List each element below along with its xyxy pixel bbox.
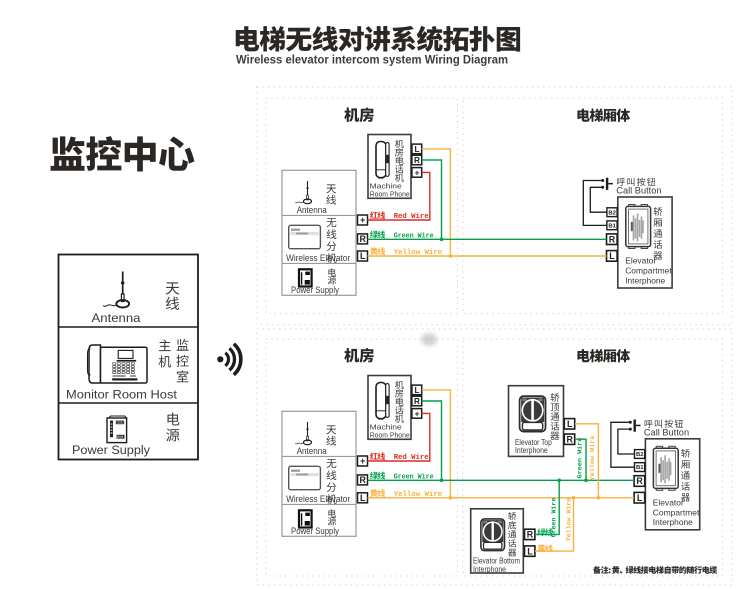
- svg-text:L: L: [414, 145, 419, 154]
- svg-text:L: L: [609, 251, 615, 261]
- svg-text:R: R: [636, 476, 643, 486]
- svg-text:L: L: [527, 546, 533, 556]
- svg-text:B1: B1: [608, 223, 616, 229]
- svg-text:Power Supply: Power Supply: [291, 526, 340, 536]
- svg-text:R: R: [414, 156, 420, 165]
- svg-text:Power Supply: Power Supply: [291, 285, 340, 295]
- svg-text:B2: B2: [608, 210, 616, 216]
- svg-text:Power Supply: Power Supply: [72, 443, 151, 457]
- svg-text:R: R: [414, 397, 420, 406]
- svg-text:Antenna: Antenna: [297, 446, 327, 456]
- svg-text:L: L: [360, 493, 366, 503]
- svg-text:+: +: [360, 456, 365, 466]
- svg-text:Antenna: Antenna: [297, 205, 327, 215]
- svg-text:R: R: [527, 530, 534, 540]
- svg-text:+: +: [415, 409, 420, 418]
- svg-text:Compartmet: Compartmet: [625, 266, 672, 276]
- svg-text:B2: B2: [636, 452, 644, 458]
- svg-text:R: R: [360, 475, 367, 485]
- svg-text:R: R: [566, 434, 573, 444]
- svg-text:+: +: [360, 215, 365, 225]
- svg-text:Yellow Wire: Yellow Wire: [566, 498, 573, 542]
- svg-text:R: R: [360, 234, 367, 244]
- svg-text:L: L: [637, 493, 643, 503]
- svg-text:Room Phone: Room Phone: [370, 430, 410, 439]
- svg-text:Wireless elevator intercom sys: Wireless elevator intercom system Wiring…: [236, 53, 508, 67]
- svg-text:L: L: [567, 419, 573, 429]
- svg-text:Call Button: Call Button: [616, 186, 661, 196]
- svg-text:Monitor Room Host: Monitor Room Host: [66, 387, 178, 401]
- svg-text:L: L: [360, 251, 366, 261]
- svg-text:Interphone: Interphone: [515, 446, 548, 455]
- svg-text:L: L: [414, 386, 419, 395]
- svg-text:R: R: [609, 234, 616, 244]
- svg-text:Wireless Elevator: Wireless Elevator: [286, 253, 351, 264]
- svg-text:Call Button: Call Button: [644, 427, 689, 437]
- svg-text:Elevator: Elevator: [653, 498, 684, 508]
- svg-text:Antenna: Antenna: [92, 311, 141, 325]
- svg-text:Compartmet: Compartmet: [653, 507, 700, 517]
- svg-text:Interphone: Interphone: [473, 565, 506, 574]
- svg-text:Green Wire: Green Wire: [551, 498, 558, 538]
- svg-text:Yellow Wire: Yellow Wire: [589, 436, 597, 481]
- svg-text:Green Wire: Green Wire: [576, 438, 584, 479]
- svg-text:+: +: [415, 168, 420, 177]
- svg-text:B1: B1: [636, 465, 644, 471]
- svg-text:Elevator: Elevator: [625, 256, 656, 266]
- svg-text:Room Phone: Room Phone: [370, 189, 410, 198]
- svg-text:Red Wire: Red Wire: [394, 213, 430, 221]
- svg-text:Wireless Elevator: Wireless Elevator: [286, 494, 351, 505]
- svg-text:Red Wire: Red Wire: [394, 454, 430, 462]
- svg-text:Interphone: Interphone: [625, 275, 665, 285]
- svg-text:Interphone: Interphone: [653, 517, 693, 527]
